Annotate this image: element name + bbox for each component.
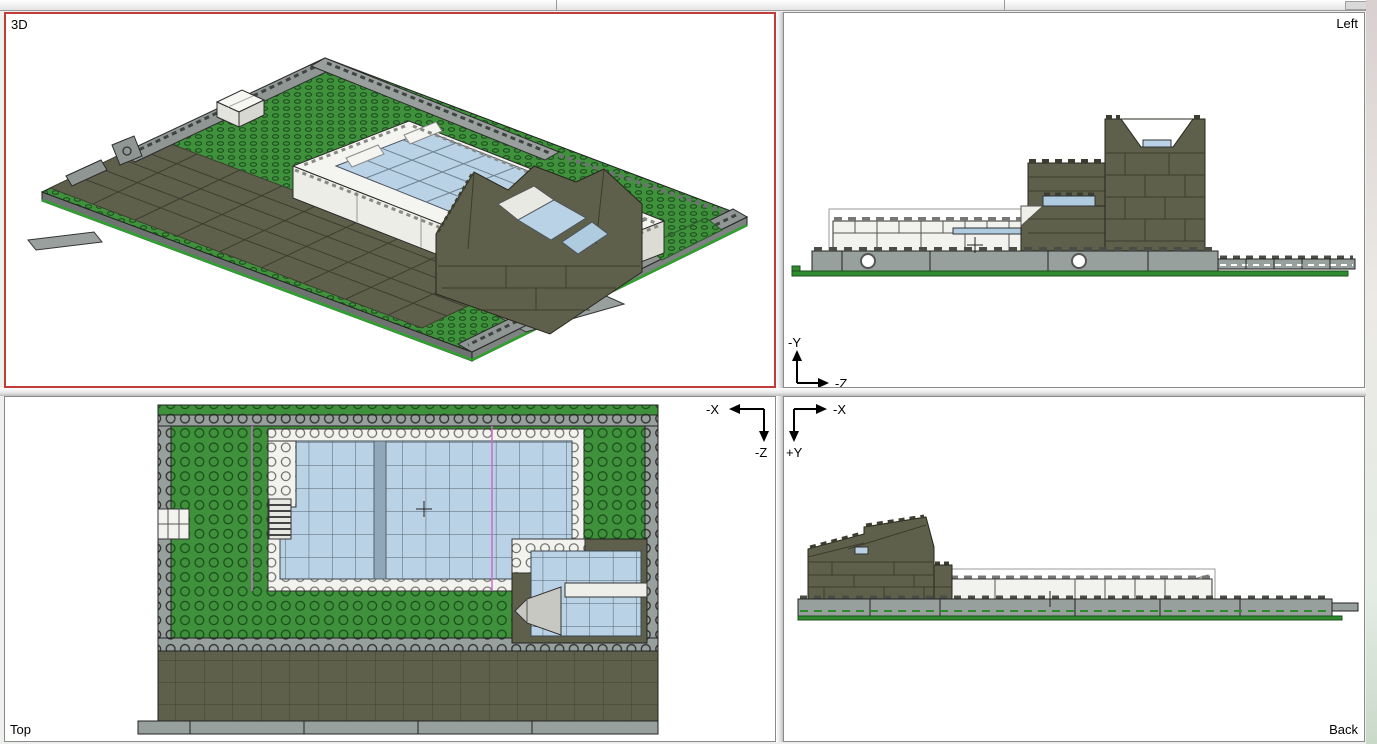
viewport-back[interactable]: Back [783, 396, 1365, 742]
axis-down-label: +Y [786, 445, 803, 459]
model-back-elevation [784, 397, 1364, 741]
axis-down-label: -Z [755, 445, 767, 459]
vertical-splitter[interactable] [776, 12, 783, 742]
axis-right-label: -Z [835, 376, 847, 388]
top-pane-edge [0, 0, 1377, 11]
sidewalk-bar [28, 232, 102, 250]
window-right-edge [1366, 0, 1377, 744]
top-pane-divider [556, 0, 557, 10]
viewport-left[interactable]: Left [783, 12, 1365, 388]
viewport-3d-label: 3D [11, 17, 28, 32]
viewport-left-label: Left [1336, 16, 1358, 31]
viewport-top[interactable]: Top [4, 396, 776, 742]
back-elevation [798, 516, 1358, 620]
viewport-back-label: Back [1329, 722, 1358, 737]
axis-indicator-left-view: -Y -Z [784, 331, 859, 388]
horizontal-splitter[interactable] [0, 388, 1377, 396]
viewport-3d[interactable]: 3D [4, 12, 776, 388]
axis-left-label: -X [706, 402, 719, 417]
left-elevation [792, 117, 1355, 276]
model-left-elevation [784, 13, 1364, 387]
model-3d-render [6, 14, 774, 386]
model-top-plan [5, 397, 775, 741]
top-plan [138, 405, 658, 734]
ldraw-editor-window: { "viewports": { "perspective": { "label… [0, 0, 1377, 744]
axis-indicator-top-view: -X -Z [700, 399, 775, 459]
axis-up-label: -Y [788, 335, 801, 350]
axis-indicator-back-view: -X +Y [784, 399, 859, 459]
axis-right-label: -X [833, 402, 846, 417]
top-pane-divider [1004, 0, 1005, 10]
viewport-top-label: Top [10, 722, 31, 737]
